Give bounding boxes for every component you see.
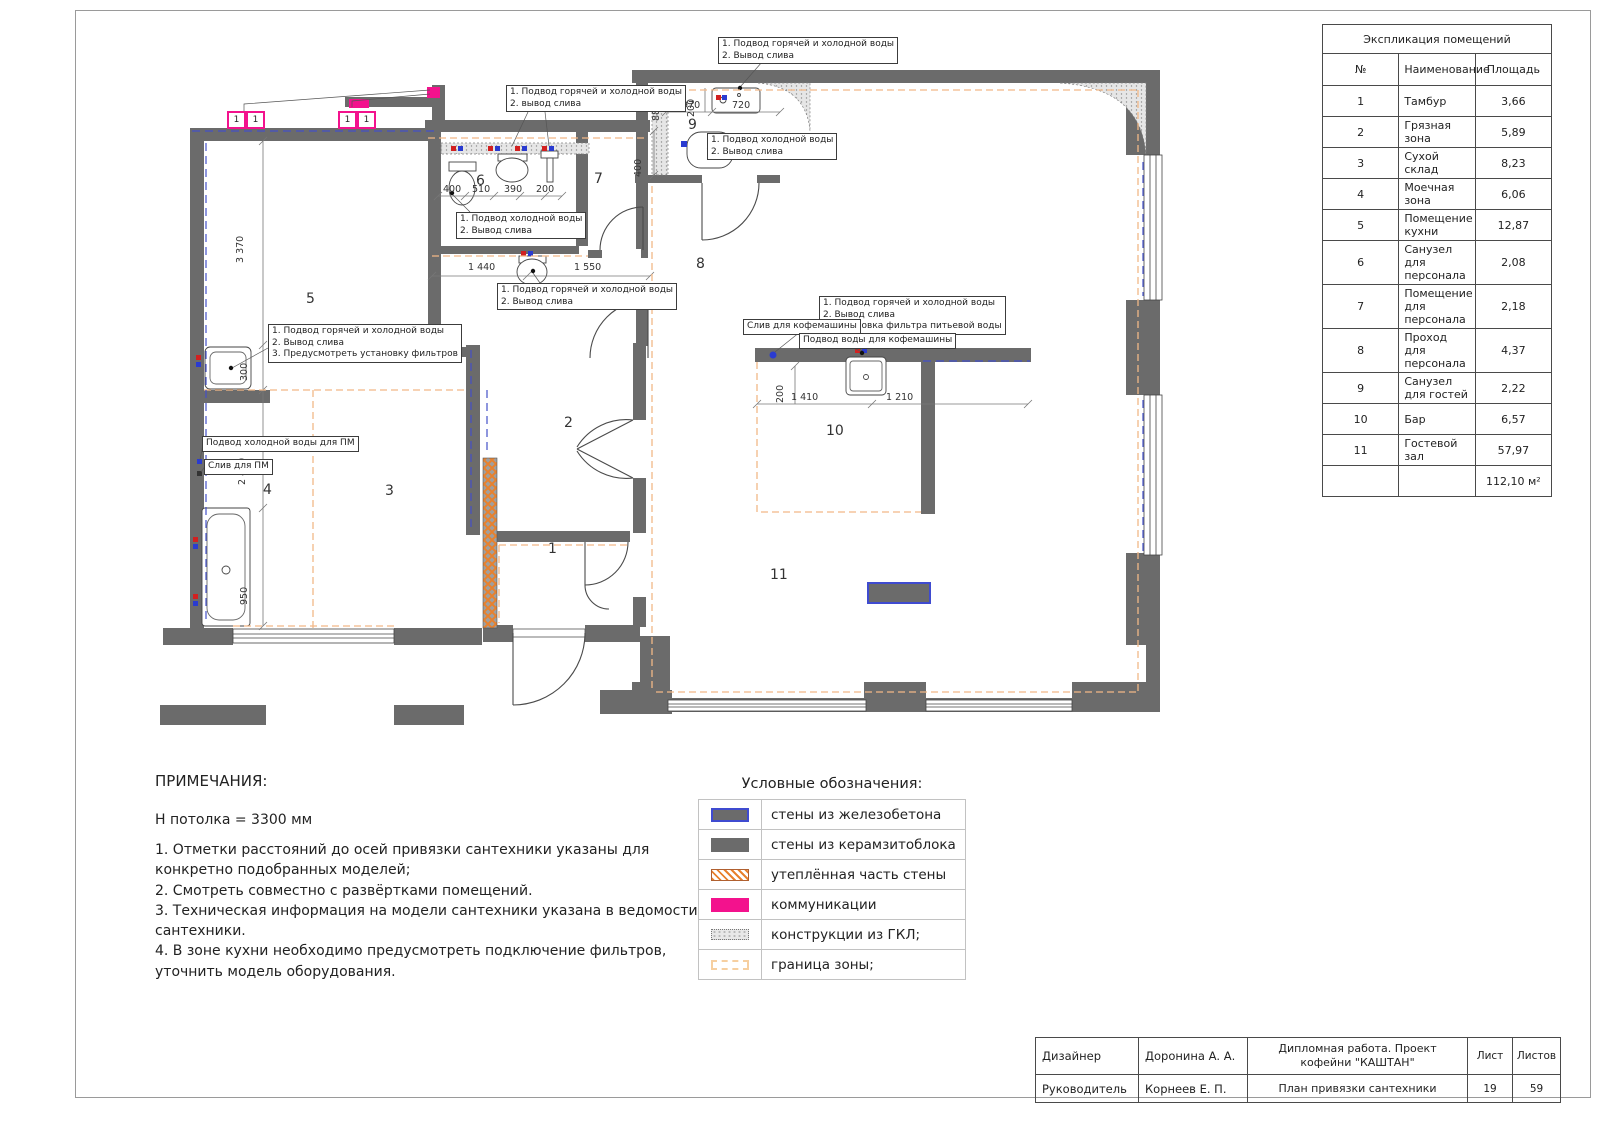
notes-block: ПРИМЕЧАНИЯ: Н потолка = 3300 мм 1. Отмет…	[155, 772, 700, 982]
riser-marker: 1	[227, 111, 246, 129]
room-name: Моечная зона	[1399, 179, 1475, 210]
callout-line: 1. Подвод горячей и холодной воды	[272, 326, 458, 338]
room-number-label: 5	[306, 291, 315, 307]
room-name: Гостевой зал	[1399, 435, 1475, 466]
callout-line: 1. Подвод холодной воды	[711, 135, 833, 147]
callout-line: 3. Предусмотреть установку фильтров	[272, 349, 458, 361]
callout-line: Слив для ПМ	[208, 461, 269, 473]
legend-row: стены из железобетона	[698, 799, 966, 830]
room-number: 1	[1323, 86, 1399, 117]
table-row: 2Грязная зона5,89	[1323, 117, 1552, 148]
ceiling-height-note: Н потолка = 3300 мм	[155, 812, 700, 828]
legend-swatch-cell	[699, 830, 762, 859]
callout-line: Подвод воды для кофемашины	[803, 335, 952, 347]
table-row: 7Помещение для персонала2,18	[1323, 285, 1552, 329]
callout-line: 1. Подвод горячей и холодной воды	[510, 87, 682, 99]
room-area: 8,23	[1475, 148, 1551, 179]
room-number: 8	[1323, 329, 1399, 373]
room-number: 4	[1323, 179, 1399, 210]
callout-line: 2. Вывод слива	[722, 51, 894, 63]
dimension-label: 200	[775, 385, 786, 403]
legend-row: утеплённая часть стены	[698, 860, 966, 890]
explication-title-row: Экспликация помещений	[1323, 25, 1552, 54]
legend-swatch-cell	[699, 950, 762, 979]
dimension-label: 510	[472, 184, 490, 195]
room-name: Бар	[1399, 404, 1475, 435]
table-row: 3Сухой склад8,23	[1323, 148, 1552, 179]
legend-row: стены из керамзитоблока	[698, 830, 966, 860]
room-number: 7	[1323, 285, 1399, 329]
table-row: 4Моечная зона6,06	[1323, 179, 1552, 210]
riser-marker: 1	[246, 111, 265, 129]
total-area: 112,10 м²	[1475, 466, 1551, 497]
table-row: 8Проход для персонала4,37	[1323, 329, 1552, 373]
room-area: 6,57	[1475, 404, 1551, 435]
room-number: 5	[1323, 210, 1399, 241]
entrance-threshold	[513, 629, 585, 637]
plumbing-callout: 1. Подвод холодной воды2. Вывод слива	[707, 133, 837, 160]
comms-swatch	[711, 898, 749, 912]
explication-title: Экспликация помещений	[1323, 25, 1552, 54]
explication-column-header: Площадь	[1475, 54, 1551, 86]
titleblock-project: Дипломная работа. Проект кофейни "КАШТАН…	[1248, 1038, 1468, 1075]
plumbing-callout: 1. Подвод горячей и холодной воды2. выво…	[506, 85, 686, 112]
room-number: 11	[1323, 435, 1399, 466]
callout-line: Слив для кофемашины	[747, 321, 857, 333]
room-number: 6	[1323, 241, 1399, 285]
gkl-swatch	[711, 929, 749, 940]
dimension-label: 1 210	[886, 392, 913, 403]
table-row: 9Санузел для гостей2,22	[1323, 373, 1552, 404]
legend-label: коммуникации	[762, 897, 877, 913]
room-name: Санузел для персонала	[1399, 241, 1475, 285]
titleblock-drawing-title: План привязки сантехники	[1248, 1075, 1468, 1103]
callout-line: 1. Подвод холодной воды	[460, 214, 582, 226]
room-area: 2,22	[1475, 373, 1551, 404]
callout-line: 2. Вывод слива	[711, 147, 833, 159]
room-name: Помещение для персонала	[1399, 285, 1475, 329]
dimension-label: 1 440	[468, 262, 495, 273]
titleblock-sheets-label: Листов	[1513, 1038, 1561, 1075]
dimension-label: 1 410	[791, 392, 818, 403]
block-swatch	[711, 838, 749, 852]
table-row: 5Помещение кухни12,87	[1323, 210, 1552, 241]
note-item: 1. Отметки расстояний до осей привязки с…	[155, 840, 700, 881]
titleblock-name-2: Корнеев Е. П.	[1139, 1075, 1248, 1103]
room-area: 2,08	[1475, 241, 1551, 285]
legend-label: граница зоны;	[762, 957, 874, 973]
room-name: Грязная зона	[1399, 117, 1475, 148]
dimension-label: 1 550	[574, 262, 601, 273]
dimension-label: 300	[239, 363, 250, 381]
concrete-swatch	[711, 808, 749, 822]
plumbing-callout: 1. Подвод холодной воды2. Вывод слива	[456, 212, 586, 239]
room-number-label: 1	[548, 541, 557, 557]
insulated-swatch	[711, 869, 749, 881]
windows	[233, 155, 1162, 711]
zone-swatch	[711, 960, 749, 970]
riser-marker: 1	[357, 111, 376, 129]
callout-line: 2. Вывод слива	[501, 297, 673, 309]
callout-line: 1. Подвод горячей и холодной воды	[722, 39, 894, 51]
room-number-label: 9	[688, 117, 697, 133]
room-area: 3,66	[1475, 86, 1551, 117]
callout-line: 2. Вывод слива	[460, 226, 582, 238]
room-area: 6,06	[1475, 179, 1551, 210]
notes-heading: ПРИМЕЧАНИЯ:	[155, 772, 700, 790]
legend-label: утеплённая часть стены	[762, 867, 946, 883]
room-area: 2,18	[1475, 285, 1551, 329]
room-number: 2	[1323, 117, 1399, 148]
room-name: Санузел для гостей	[1399, 373, 1475, 404]
callout-line: 1. Подвод горячей и холодной воды	[823, 298, 1002, 310]
plumbing-callout: 1. Подвод горячей и холодной воды2. Выво…	[268, 324, 462, 363]
legend-swatch-cell	[699, 920, 762, 949]
plumbing-callout: 1. Подвод горячей и холодной воды2. Выво…	[718, 37, 898, 64]
legend-block: Условные обозначения: стены из железобет…	[698, 776, 966, 980]
legend-row: коммуникации	[698, 890, 966, 920]
room-number-label: 10	[826, 423, 844, 439]
room-number-label: 7	[594, 171, 603, 187]
titleblock-role-2: Руководитель	[1036, 1075, 1139, 1103]
room-number: 10	[1323, 404, 1399, 435]
plumbing-callout: 1. Подвод горячей и холодной воды2. Выво…	[497, 283, 677, 310]
room-number-label: 8	[696, 256, 705, 272]
table-row: 10Бар6,57	[1323, 404, 1552, 435]
table-row: 1Тамбур3,66	[1323, 86, 1552, 117]
callout-line: 2. вывод слива	[510, 99, 682, 111]
dimension-label: 950	[239, 587, 250, 605]
title-block: Дизайнер Доронина А. А. Дипломная работа…	[1035, 1037, 1561, 1103]
room-number: 3	[1323, 148, 1399, 179]
legend-swatch-cell	[699, 890, 762, 919]
room-name: Тамбур	[1399, 86, 1475, 117]
room-name: Помещение кухни	[1399, 210, 1475, 241]
room-number-label: 2	[564, 415, 573, 431]
dimension-label: 200	[536, 184, 554, 195]
legend-title: Условные обозначения:	[698, 776, 966, 792]
room-number-label: 4	[263, 482, 272, 498]
explication-header-row: №НаименованиеПлощадь	[1323, 54, 1552, 86]
note-item: 3. Техническая информация на модели сант…	[155, 901, 700, 942]
callout-line: 2. Вывод слива	[272, 338, 458, 350]
room-area: 12,87	[1475, 210, 1551, 241]
legend-row: конструкции из ГКЛ;	[698, 920, 966, 950]
room-number: 9	[1323, 373, 1399, 404]
insulated-wall	[483, 458, 497, 628]
concrete-wall-marks	[192, 131, 1143, 624]
room-name: Сухой склад	[1399, 148, 1475, 179]
total-empty-num	[1323, 466, 1399, 497]
table-row: 11Гостевой зал57,97	[1323, 435, 1552, 466]
titleblock-sheet-label: Лист	[1468, 1038, 1513, 1075]
explication-total-row: 112,10 м²	[1323, 466, 1552, 497]
room-number-label: 11	[770, 567, 788, 583]
dimension-label: 390	[504, 184, 522, 195]
room-number-label: 3	[385, 483, 394, 499]
drawing-sheet: { "explication": { "title": "Экспликация…	[0, 0, 1600, 1132]
callout-line: Подвод холодной воды для ПМ	[206, 438, 355, 450]
plumbing-callout: Подвод холодной воды для ПМ	[202, 436, 359, 452]
dimension-label: 720	[732, 100, 750, 111]
legend-row: граница зоны;	[698, 950, 966, 980]
explication-column-header: Наименование	[1399, 54, 1475, 86]
concrete-column	[868, 583, 930, 603]
legend-swatch-cell	[699, 800, 762, 829]
table-row: 6Санузел для персонала2,08	[1323, 241, 1552, 285]
room-explication-table: Экспликация помещений№НаименованиеПлощад…	[1322, 24, 1552, 497]
room-area: 5,89	[1475, 117, 1551, 148]
titleblock-sheets-total: 59	[1513, 1075, 1561, 1103]
dimension-label: 400	[443, 184, 461, 195]
legend-label: конструкции из ГКЛ;	[762, 927, 920, 943]
note-item: 4. В зоне кухни необходимо предусмотреть…	[155, 941, 700, 982]
legend-label: стены из керамзитоблока	[762, 837, 956, 853]
callout-line: 1. Подвод горячей и холодной воды	[501, 285, 673, 297]
note-item: 2. Смотреть совместно с развёртками поме…	[155, 881, 700, 901]
legend-swatch-cell	[699, 860, 762, 889]
room-name: Проход для персонала	[1399, 329, 1475, 373]
total-empty-name	[1399, 466, 1475, 497]
titleblock-role-1: Дизайнер	[1036, 1038, 1139, 1075]
room-area: 57,97	[1475, 435, 1551, 466]
plumbing-callout: Слив для ПМ	[204, 459, 273, 475]
room-area: 4,37	[1475, 329, 1551, 373]
legend-label: стены из железобетона	[762, 807, 941, 823]
plumbing-callout: Подвод воды для кофемашины	[799, 333, 956, 349]
titleblock-sheet-number: 19	[1468, 1075, 1513, 1103]
dimension-label: 400	[633, 159, 644, 177]
titleblock-name-1: Доронина А. А.	[1139, 1038, 1248, 1075]
explication-column-header: №	[1323, 54, 1399, 86]
dimension-label: 3 370	[235, 236, 246, 263]
riser-marker: 1	[338, 111, 357, 129]
